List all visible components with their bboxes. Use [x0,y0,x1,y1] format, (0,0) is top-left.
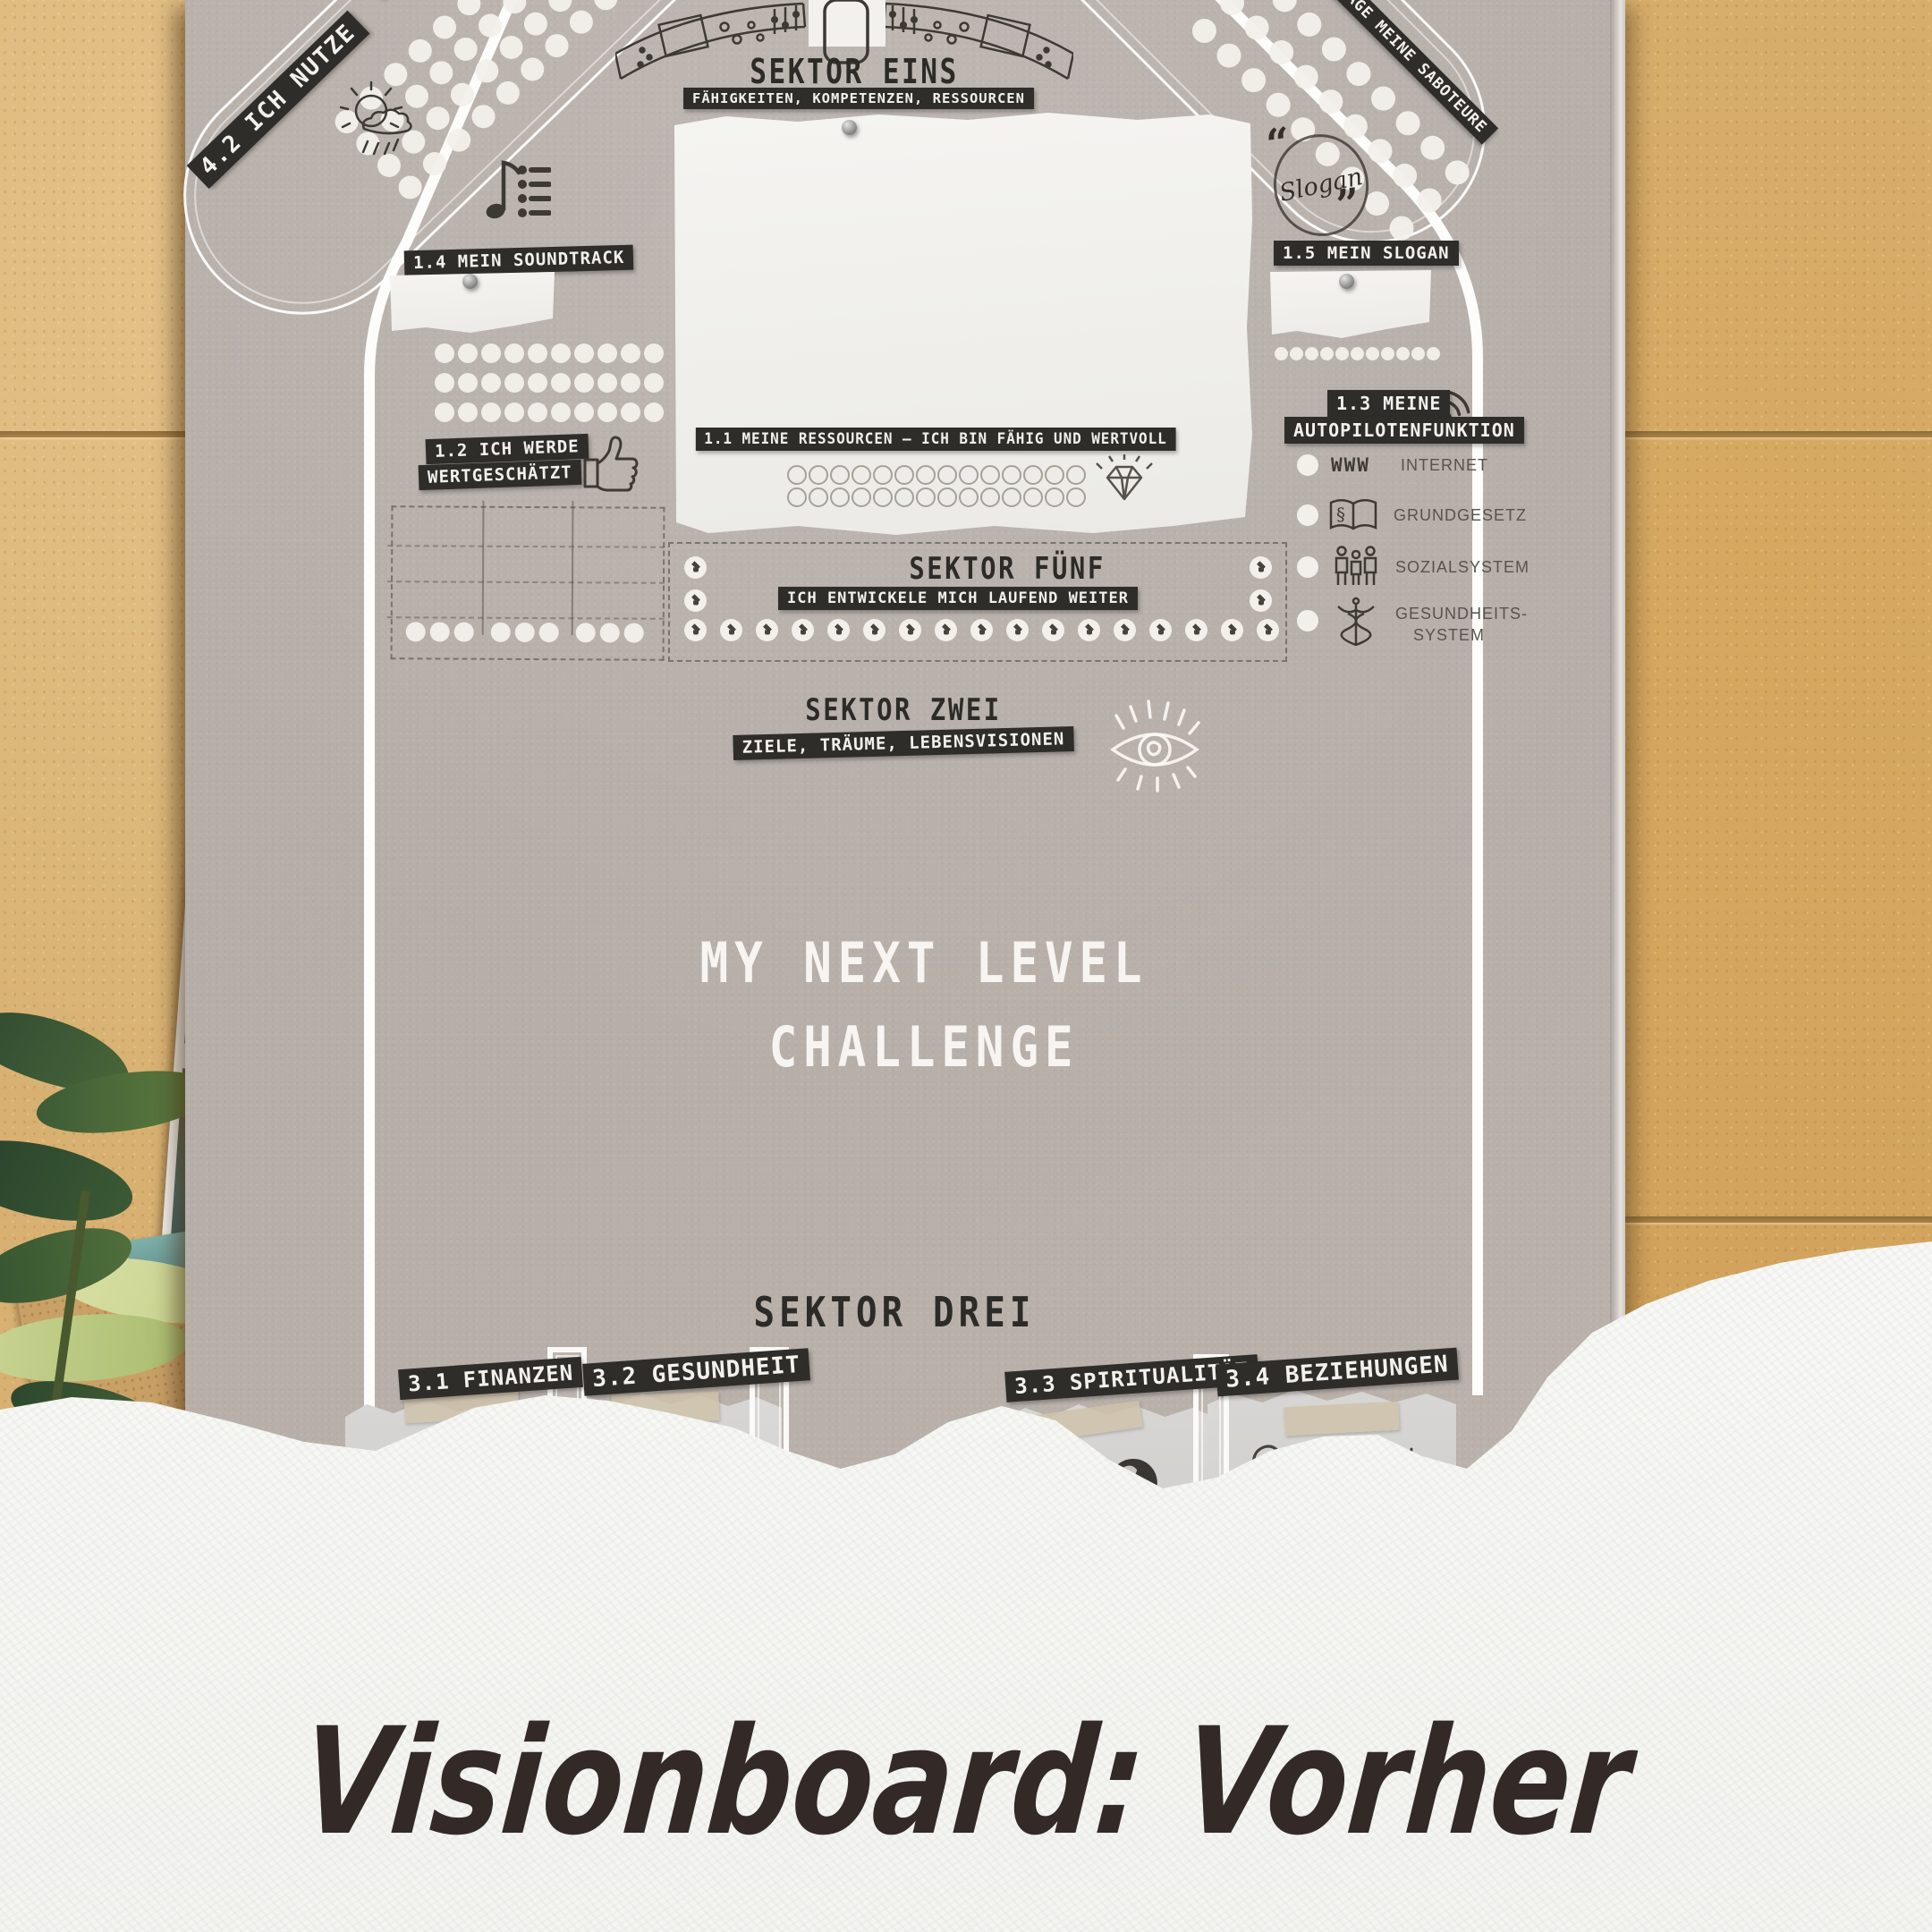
dot [443,123,476,157]
dot [809,487,828,507]
resource-circles [787,465,1091,510]
dot [830,465,850,485]
dot [1290,347,1303,360]
dot [1215,0,1249,20]
dot [430,622,450,641]
dot [684,556,707,579]
sektor5-right-dots [1250,556,1273,619]
dot [539,623,559,642]
dot [937,465,957,485]
dot [458,373,478,393]
sektor5-bottom-dots [684,619,1284,646]
dot [551,343,571,363]
sun-cloud-rain-icon [337,79,427,172]
list-bullet [1297,610,1318,631]
sektor1-subtitle: FÄHIGKEITEN, KOMPETENZEN, RESSOURCEN [683,88,1034,109]
dot [504,343,524,363]
autopilot-item-label: GRUNDGESETZ [1394,506,1527,525]
dot [827,619,850,641]
dot [937,487,957,507]
sektor5-left-dots [684,556,708,619]
slogan-label: 1.5 MEIN SLOGAN [1274,241,1459,266]
dot [1212,38,1246,72]
dot [1023,465,1043,485]
dot [959,465,979,485]
dot [1387,158,1421,192]
dot [1002,487,1021,507]
dot [565,5,598,38]
dot [980,487,1000,507]
slogan-dots [1275,347,1445,363]
www-icon: WWW [1331,454,1370,476]
wall-tile-joint [1625,431,1932,437]
dot [458,343,478,363]
pin [842,120,857,135]
dot [1363,134,1397,168]
dot [406,622,426,641]
dot [1391,106,1425,140]
dot [528,343,547,363]
dot [495,31,528,64]
dot [1411,347,1425,360]
dot [1305,347,1318,360]
dot [597,373,617,393]
table-dots [406,622,657,646]
dot [1265,35,1299,69]
dot [435,343,454,363]
dot [1023,487,1043,507]
dot [1250,589,1272,612]
dot [1045,487,1064,507]
autopilot-list: WWW INTERNET § GRUNDGESETZ S [1288,445,1610,660]
dot [830,487,850,507]
dot [1066,487,1086,507]
sektor1-title: SEKTOR EINS [750,52,958,91]
dot [644,373,664,393]
dot [394,171,427,204]
people-icon [1333,544,1379,590]
dot [1292,7,1326,41]
dot [1078,619,1100,641]
dot [449,33,482,66]
scene: 4.2 ICH NUTZE ZUR WE MANAGE MEINE SABOTE… [0,0,1932,1932]
dot [621,402,640,422]
dot [756,619,778,641]
caduceus-icon [1335,596,1377,648]
dot [792,619,814,641]
dot [425,56,458,89]
dot [528,373,547,393]
dot [980,465,1000,485]
dot [852,487,871,507]
dot [1267,0,1301,17]
dot [899,619,921,641]
dot [551,373,571,393]
dot [1320,347,1334,360]
dot [474,9,507,42]
dot [621,373,640,393]
dot [600,623,620,642]
dot [446,78,479,111]
dot [467,100,500,133]
dot [970,619,993,641]
dot [576,623,596,642]
dot [1317,32,1351,66]
autopilot-item-label: SOZIALSYSTEM [1395,558,1529,577]
sektor5-title: SEKTOR FÜNF [909,551,1105,587]
dot [1187,13,1221,47]
dot [428,11,462,44]
dot [528,402,547,422]
dot [1440,156,1474,190]
dot [481,402,501,422]
soundtrack-dots [435,343,667,433]
leaf [0,1126,140,1235]
dot [873,487,893,507]
dot [470,55,504,88]
dot [720,619,742,641]
dot [809,465,828,485]
dot [504,373,524,393]
wall-tile-joint [1625,1216,1932,1223]
sektor3-title: SEKTOR DREI [753,1288,1035,1336]
dot [1427,347,1440,360]
pin [1339,274,1354,289]
dot [574,402,594,422]
dot [435,373,454,393]
dot [894,465,914,485]
dot [1289,60,1323,94]
eye-doodle [1105,676,1205,809]
pin [462,274,478,289]
dot [481,343,501,363]
dot [1381,347,1394,360]
dot [935,619,957,641]
dot [621,343,640,363]
caption-text: Visionboard: Vorher [295,1696,1637,1868]
dot [916,465,936,485]
autopilot-label-line2: AUTOPILOTENFUNKTION [1284,417,1524,444]
dot [894,487,914,507]
dot [644,343,664,363]
dot [1114,619,1136,641]
dot [574,343,594,363]
dot [1006,619,1029,641]
dot [1250,556,1272,579]
pinned-note-top [809,0,885,47]
dot [1045,465,1064,485]
ratings-table [391,505,665,661]
music-playlist-icon [483,150,551,227]
dot [435,402,454,422]
law-book-icon: § [1327,496,1379,537]
svg-text:§: § [1336,504,1345,525]
dot [787,487,807,507]
dot [574,373,594,393]
dot [504,402,524,422]
visionboard-poster: 4.2 ICH NUTZE ZUR WE MANAGE MEINE SABOTE… [185,0,1625,1592]
dot [1338,109,1372,143]
dot [1042,619,1064,641]
dot [1257,619,1279,641]
autopilot-item-label2: SYSTEM [1395,626,1503,645]
sektor2-title: SEKTOR ZWEI [805,692,1001,728]
resources-label: 1.1 MEINE RESSOURCEN – ICH BIN FÄHIG UND… [696,428,1175,451]
tape [1284,1402,1399,1436]
resources-paper: 1.1 MEINE RESSOURCEN – ICH BIN FÄHIG UND… [673,113,1252,537]
dot [1416,131,1450,165]
dot [1185,619,1207,641]
dot [1314,85,1348,119]
dot [1002,465,1021,485]
dot [1236,64,1270,97]
sektor5-subtitle: ICH ENTWICKELE MICH LAUFEND WEITER [778,587,1138,610]
dot [684,589,707,612]
dot [597,343,617,363]
dot [1351,347,1364,360]
dot [1412,183,1446,217]
dot [1221,619,1243,641]
autopilot-item-label: GESUNDHEITS- [1395,605,1503,623]
wall-tile-joint [0,431,185,437]
dot [1342,56,1376,90]
dot [959,487,979,507]
dot [1366,81,1400,115]
dot [516,53,549,86]
dot [644,402,664,422]
dot [1149,619,1172,641]
autopilot-label-line1: 1.3 MEINE [1327,390,1450,417]
dot [492,76,525,109]
dot [491,623,511,642]
dot [624,623,644,643]
dot [515,623,535,642]
dot [787,465,807,485]
dot [597,402,617,422]
dot [481,373,501,393]
thumbs-up-icon [580,431,653,494]
dot [551,402,571,422]
list-bullet [1297,556,1318,578]
dot [458,402,478,422]
dot [684,619,707,641]
dot [1261,88,1295,122]
dot [1275,347,1288,360]
diamond-icon [1095,454,1154,517]
dot [1396,347,1410,360]
dot [1066,465,1086,485]
list-bullet [1297,504,1318,526]
dot [454,623,474,642]
dot [1366,347,1379,360]
dot [1335,347,1349,360]
dot [1240,11,1274,45]
dot [863,619,885,641]
dot [873,465,893,485]
dot [540,30,573,63]
sektor5-box: SEKTOR FÜNF ICH ENTWICKELE MICH LAUFEND … [668,542,1287,662]
center-title-line2: CHALLENGE [769,1014,1080,1080]
dot [852,465,871,485]
autopilot-item-label: INTERNET [1401,456,1488,475]
dot [403,35,436,68]
center-title-line1: MY NEXT LEVEL [700,930,1148,996]
list-bullet [1297,454,1318,476]
dot [916,487,936,507]
dot [520,7,553,40]
